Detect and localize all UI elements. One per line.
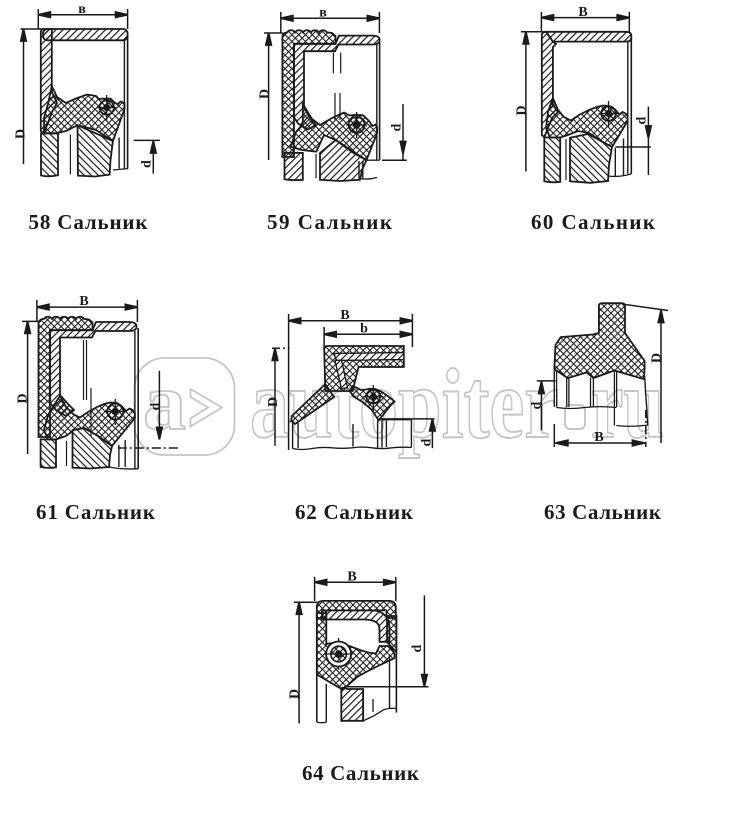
svg-text:D: D [14, 129, 29, 139]
svg-text:D: D [288, 689, 303, 699]
svg-text:d: d [390, 124, 405, 132]
svg-text:64 Сальник: 64 Сальник [302, 761, 420, 785]
svg-text:B: B [594, 430, 603, 445]
svg-text:B: B [79, 294, 88, 309]
svg-text:B: B [340, 308, 349, 323]
svg-text:в: в [78, 2, 86, 17]
svg-text:59 Сальник: 59 Сальник [267, 210, 393, 234]
svg-text:B: B [347, 570, 356, 585]
svg-text:61 Сальник: 61 Сальник [36, 500, 156, 524]
svg-text:d: d [149, 403, 164, 411]
svg-text:58 Сальник: 58 Сальник [29, 210, 149, 234]
svg-text:d: d [635, 117, 650, 125]
svg-text:d: d [140, 160, 155, 168]
svg-text:63 Сальник: 63 Сальник [544, 500, 662, 524]
svg-text:60 Сальник: 60 Сальник [531, 210, 656, 234]
svg-text:d: d [530, 402, 545, 410]
svg-text:D: D [650, 353, 665, 363]
svg-text:62 Сальник: 62 Сальник [295, 500, 414, 524]
svg-text:d: d [410, 645, 425, 653]
svg-text:D: D [16, 393, 31, 403]
svg-text:B: B [578, 5, 587, 20]
svg-text:в: в [319, 6, 327, 21]
svg-text:D: D [258, 89, 273, 99]
svg-text:D: D [515, 105, 530, 115]
svg-text:b: b [360, 322, 368, 337]
svg-text:d: d [420, 439, 435, 447]
svg-text:D: D [266, 397, 281, 407]
